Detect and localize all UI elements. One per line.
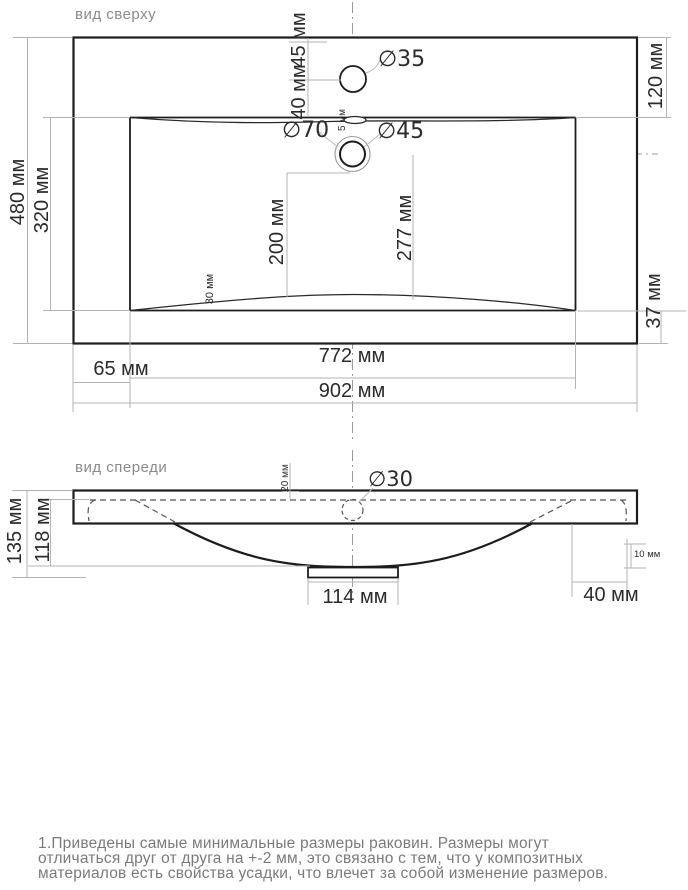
dim-text-200: 200 мм <box>266 199 288 265</box>
dim-lines-front-view <box>12 463 646 605</box>
front-view: вид спереди <box>4 450 660 608</box>
dim-text-40: 40 мм <box>288 64 310 119</box>
dim-text-5: 5 мм <box>337 109 348 131</box>
dim-text-277: 277 мм <box>394 195 416 261</box>
top-view-label: вид сверху <box>75 6 156 23</box>
drawing-sheet: вид сверху <box>0 0 688 890</box>
dim-text-120: 120 мм <box>645 43 667 109</box>
dim-text-drain-front: ∅30 <box>368 467 413 491</box>
dim-text-65: 65 мм <box>93 358 148 380</box>
dim-text-37: 37 мм <box>643 273 665 328</box>
dim-text-30: 30 мм <box>204 274 216 304</box>
dim-text-drain-inner: ∅45 <box>377 119 424 144</box>
dim-text-faucet-diameter: ∅35 <box>378 47 425 72</box>
drain-flange <box>308 568 398 578</box>
dim-text-320: 320 мм <box>31 167 53 233</box>
drain-hole-inner <box>340 142 365 167</box>
dim-text-10: 10 мм <box>634 549 660 560</box>
dim-text-20: 20 мм <box>280 464 291 492</box>
slab-contour <box>74 491 638 524</box>
dim-text-114: 114 мм <box>323 586 388 608</box>
dim-text-135: 135 мм <box>4 498 26 564</box>
footnote: 1.Приведены самые минимальные размеры ра… <box>38 835 608 882</box>
footnote-line-3: материалов есть свойства усадки, что вле… <box>38 865 608 882</box>
dim-text-118: 118 мм <box>32 498 54 563</box>
dim-text-902: 902 мм <box>319 380 385 402</box>
top-view: вид сверху <box>7 2 686 443</box>
dim-text-772: 772 мм <box>319 345 385 367</box>
dim-text-480: 480 мм <box>7 159 29 225</box>
front-view-label: вид спереди <box>75 459 167 476</box>
dim-text-drain-outer: ∅70 <box>282 118 329 143</box>
faucet-hole <box>340 66 366 92</box>
dim-text-45: 45 мм <box>288 12 310 67</box>
sink-technical-drawing: вид сверху <box>0 0 688 890</box>
dim-text-40: 40 мм <box>583 584 638 606</box>
